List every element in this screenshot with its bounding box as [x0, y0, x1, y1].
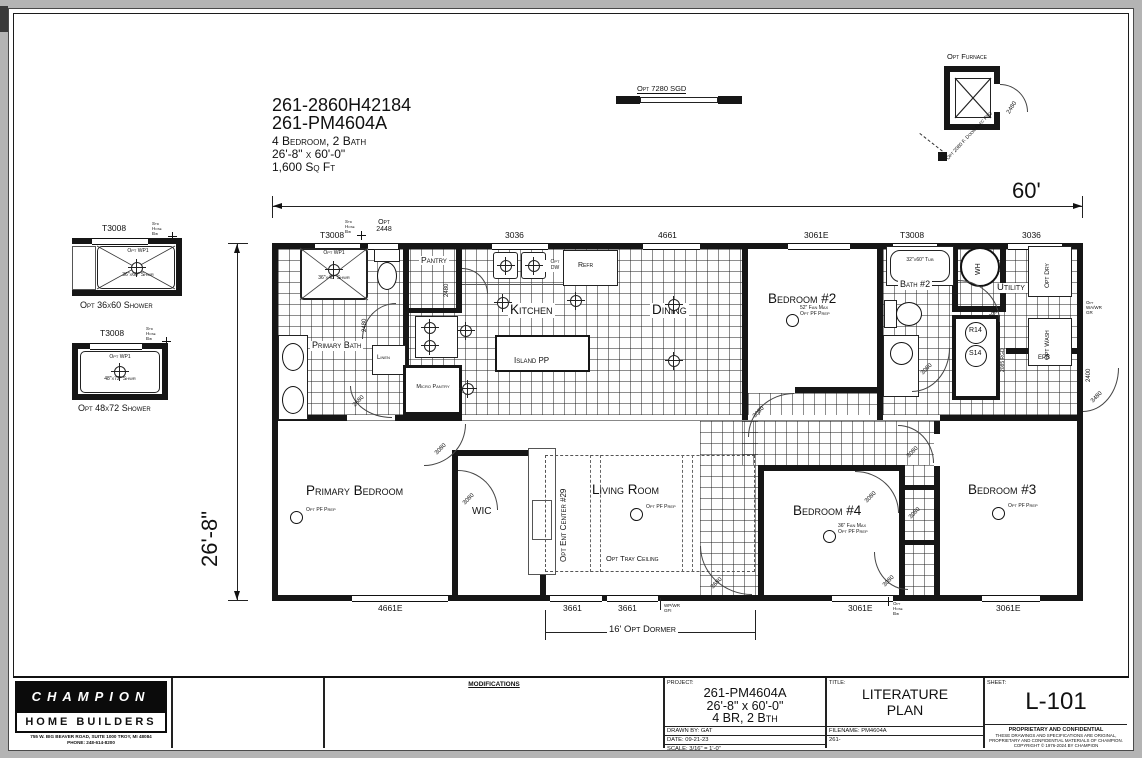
wall [940, 415, 1083, 421]
window-label: 3061E [804, 231, 829, 240]
detail1-hose-bib-label: Std Hose Bib [152, 221, 167, 237]
shower-size-label: 36"x48" Shwr [314, 276, 354, 282]
row-line [664, 735, 825, 736]
shower-wp-label: Opt WP1 [314, 251, 354, 257]
sheet-title-2: PLAN [827, 702, 983, 718]
arrow-down-icon [234, 591, 240, 600]
drawn-by: DRAWN BY: GAT [667, 728, 712, 734]
wall [409, 308, 462, 313]
tub-basin-icon [890, 250, 950, 282]
dimension-line [272, 206, 1083, 207]
room-label-bedroom3: Bedroom #3 [968, 483, 1036, 498]
ceiling-light-icon [668, 355, 680, 367]
wall [72, 343, 78, 400]
wall [162, 343, 168, 400]
window-label: 3036 [1022, 231, 1041, 240]
window-label: 3661 [563, 604, 582, 613]
room-label-utility: Utility [995, 283, 1027, 293]
detail2-size-label: 48"x72" Shwr [100, 377, 140, 383]
fan-outlet-icon [992, 507, 1005, 520]
epb-label: EPB [1038, 355, 1050, 361]
width-dimension: 60' [1012, 179, 1041, 203]
wall [934, 421, 940, 434]
window-label: 3036 [505, 231, 524, 240]
room-label-living: Living Room [592, 483, 659, 498]
island-label: Island PP [512, 357, 551, 366]
project-beds: 4 BR, 2 Bth [665, 712, 825, 726]
room-label-bath2: Bath #2 [898, 280, 932, 290]
detail1-caption: Opt 36x60 Shower [80, 301, 153, 311]
window-label: 3061E [848, 604, 873, 613]
row-line [826, 726, 983, 727]
dimension-tick [228, 600, 248, 601]
window [788, 243, 850, 250]
dormer-dimension: 16' Opt Dormer [607, 625, 678, 635]
room-label-pantry: Pantry [419, 256, 449, 265]
toilet-icon [377, 262, 397, 290]
sink-icon [282, 386, 304, 414]
kitchen-island [495, 335, 590, 372]
register-s14-label: S14 [969, 350, 981, 358]
opt-hose-bib-label: Opt Hose Bib [893, 601, 909, 617]
wall [994, 66, 1000, 84]
wall [395, 415, 462, 421]
fan-outlet-icon [823, 530, 836, 543]
drawing-sheet: 261-2860H42184 261-PM4604A 4 Bedroom, 2 … [0, 0, 1142, 758]
company-address: 755 W. BIG BEAVER ROAD, SUITE 1000 TROY,… [15, 734, 167, 746]
window-label: 4661 [658, 231, 677, 240]
project-model: 261-PM4604A [665, 685, 825, 700]
wall [176, 238, 182, 296]
sgd-door-icon [640, 97, 718, 103]
sgd-jamb [616, 96, 640, 104]
fan-note: Opt PF Prep [646, 505, 676, 511]
detail1-cabinet [72, 246, 96, 290]
gfi-symbol-icon [660, 598, 661, 610]
room-label-primary-bath: Primary Bath [310, 341, 363, 351]
row-line [984, 724, 1127, 725]
arrow-up-icon [234, 244, 240, 253]
detail2-window-label: T3008 [100, 329, 124, 338]
room-label-kitchen: Kitchen [508, 303, 555, 318]
wall [944, 66, 950, 130]
window-label: T3008 [900, 231, 924, 240]
wall [902, 485, 940, 490]
window [982, 595, 1040, 602]
champion-logo-text: CHAMPION [32, 689, 151, 704]
window-label: Opt 2448 [370, 219, 398, 233]
filename: FILENAME: PM4604A [829, 728, 887, 734]
divider [323, 678, 325, 748]
furnace-title: Opt Furnace [947, 53, 987, 61]
hose-bib-icon [357, 231, 366, 240]
file-prefix: 261- [829, 737, 841, 743]
row-line [826, 735, 983, 736]
row-line [664, 726, 825, 727]
window-label: 3661 [618, 604, 637, 613]
detail1-window-label: T3008 [102, 224, 126, 233]
spec-area: 1,600 Sq Ft [272, 161, 335, 174]
arrow-left-icon [273, 203, 282, 209]
room-label-primary-bedroom: Primary Bedroom [306, 484, 403, 499]
dormer-post-line [590, 455, 591, 572]
title-block: CHAMPION HOME BUILDERS 755 W. BIG BEAVER… [13, 676, 1129, 746]
ceiling-light-icon [460, 325, 472, 337]
sheet-number: L-101 [985, 688, 1127, 716]
detail2-hose-bib-label: Std Hose Bib [146, 326, 161, 342]
sheet-label: SHEET: [987, 680, 1006, 686]
register-r14-label: R14 [969, 327, 982, 335]
wall [72, 290, 182, 296]
fan-note-line2: Opt PF Prep [838, 530, 868, 536]
door-label: 2480 [362, 319, 368, 332]
furnace-x-icon [955, 78, 991, 118]
dryer-label: Opt Dry [1044, 263, 1051, 288]
wall [902, 540, 940, 545]
linen-label: Linen [377, 355, 390, 361]
ceiling-light-icon [462, 383, 474, 395]
window [550, 595, 602, 602]
toilet-icon [896, 302, 922, 326]
fan-note: Opt PF Prep [306, 508, 336, 514]
wall [72, 394, 168, 400]
home-builders-text: HOME BUILDERS [25, 716, 156, 728]
scale: SCALE: 3/16" = 1'-0" [667, 746, 721, 752]
wall-exterior-left [272, 243, 278, 601]
detail2-wp-label: Opt WP1 [100, 355, 140, 361]
burner-icon [424, 340, 436, 352]
wall [1000, 243, 1006, 312]
date: DATE: 09-21-23 [667, 737, 708, 743]
window-label: T3008 [320, 231, 344, 240]
fan-note: Opt PF Prep [1008, 504, 1038, 510]
fan-outlet-icon [290, 511, 303, 524]
dishwasher-label: Opt DW [545, 260, 565, 272]
dormer-post-line [600, 455, 601, 572]
refrigerator-label: Refr [578, 262, 593, 270]
divider [171, 678, 173, 748]
burner-icon [424, 322, 436, 334]
ceiling-light-icon [668, 299, 680, 311]
dormer-post-line [692, 455, 693, 572]
detail1-wp-label: Opt WP1 [118, 249, 158, 255]
dimension-tick [545, 610, 546, 640]
wall [758, 465, 905, 471]
fan-outlet-icon [630, 508, 643, 521]
wall [994, 112, 1000, 130]
screen-artifact [0, 6, 8, 32]
model-number-2: 261-PM4604A [272, 114, 387, 133]
window [92, 238, 148, 245]
opt-sgd-label: Opt 7280 SGD [637, 85, 686, 94]
window-label: 4661E [378, 604, 403, 613]
detail1-size-label: 36"x60" Shwr [118, 273, 158, 279]
toilet-tank [374, 249, 400, 262]
wall-note-wa: Opt WA/WR GR [1086, 300, 1102, 316]
wall [944, 66, 1000, 72]
wall [795, 387, 880, 393]
door-label: 2480 [444, 284, 450, 297]
chase-note: 2085 RGD [1001, 348, 1006, 372]
sink-drain-icon [500, 260, 512, 272]
sink-drain-icon [528, 260, 540, 272]
detail2-caption: Opt 48x72 Shower [78, 404, 151, 414]
hose-bib-icon [884, 597, 893, 606]
window [607, 595, 658, 602]
proprietary-line4: COPYRIGHT © 1976-2024 BY CHAMPION [985, 743, 1127, 748]
ceiling-light-icon [497, 297, 509, 309]
window [352, 595, 448, 602]
tub-label: 32"x60" Tub [900, 258, 940, 264]
depth-dimension: 26'-8" [198, 511, 222, 567]
window-label: 3061E [996, 604, 1021, 613]
spec-size: 26'-8" x 60'-0" [272, 148, 345, 161]
water-heater-label: WH [975, 263, 983, 275]
champion-logo: CHAMPION [15, 681, 167, 711]
range-icon [415, 316, 458, 358]
phone-line: PHONE: 248-614-8200 [15, 740, 167, 746]
sink-icon [890, 342, 913, 365]
window [492, 243, 548, 250]
sink-icon [282, 343, 304, 371]
home-builders-banner: HOME BUILDERS [15, 711, 167, 733]
wall [742, 243, 748, 420]
dormer-post-line [682, 455, 683, 572]
arrow-right-icon [1073, 203, 1082, 209]
fan-outlet-icon [786, 314, 799, 327]
dimension-tick [755, 610, 756, 640]
sheet-title-1: LITERATURE [827, 686, 983, 702]
dimension-line [237, 243, 238, 601]
room-label-wic: WIC [472, 507, 491, 518]
spec-bedrooms: 4 Bedroom, 2 Bath [272, 135, 366, 148]
wall-exterior-right [1077, 243, 1083, 601]
window [643, 243, 700, 250]
dimension-tick [1082, 196, 1083, 218]
wall [758, 465, 764, 601]
micro-pantry-label: Micro Pantry [408, 384, 458, 390]
tray-ceiling-label: Opt Tray Ceiling [604, 555, 661, 563]
fan-note-line2: Opt PF Prep [800, 312, 830, 318]
gfi-label: WP/WR GFI [664, 603, 686, 613]
sgd-jamb [718, 96, 742, 104]
window [90, 343, 142, 350]
modifications-header: MODIFICATIONS [325, 681, 663, 688]
room-label-bedroom4: Bedroom #4 [793, 504, 861, 519]
ceiling-light-icon [570, 295, 582, 307]
